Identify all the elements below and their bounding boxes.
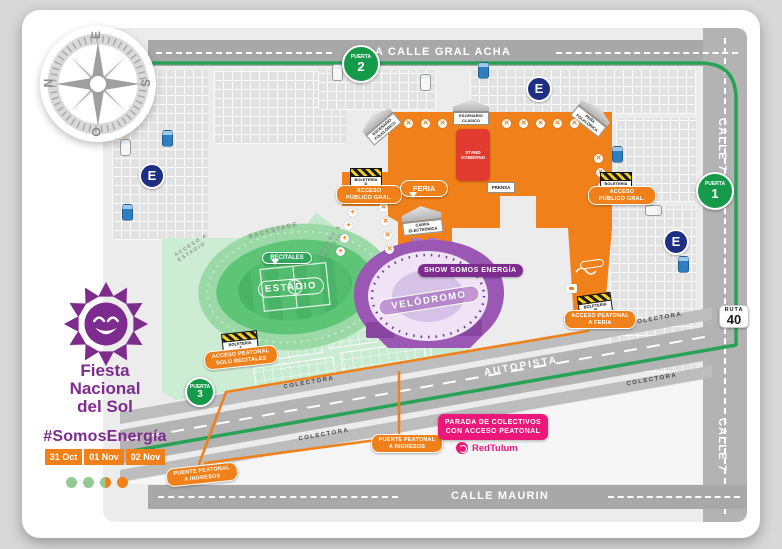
- sun-logo: [62, 280, 150, 368]
- legend-dots: [66, 477, 128, 488]
- turnstile-x-icon: ✕: [536, 119, 545, 128]
- turnstile-x-icon: ✕: [502, 119, 511, 128]
- turnstile-x-icon: ✕: [404, 119, 413, 128]
- turnstile-x-icon: ✕: [379, 203, 388, 212]
- turnstile-x-icon: ✕: [438, 119, 447, 128]
- acceso-publico-gral-left: ACCESOPÚBLICO GRAL.: [336, 185, 402, 204]
- entry-plus-icon: +: [336, 247, 345, 256]
- tent-icon: [453, 100, 489, 112]
- carpa-electronica-tent: CARPA ELECTRÓNICA: [401, 204, 444, 236]
- compass-rose: E N S O: [40, 26, 156, 142]
- gate-puerta-1: PUERTA 1: [696, 172, 734, 210]
- turnstile-x-icon: ✕: [383, 231, 392, 240]
- compass-letter-north: N: [41, 79, 55, 88]
- show-somos-energia-badge: SHOW SOMOS ENERGÍA: [418, 264, 523, 277]
- entry-plus-icon: +: [344, 221, 353, 230]
- puente-peatonal-center: PUENTE PEATONALA INGRESOS: [371, 434, 443, 453]
- car-icon: [162, 130, 173, 147]
- event-title: Fiesta Nacional del Sol: [38, 362, 172, 416]
- compass-letter-east: E: [89, 31, 103, 39]
- turnstile-x-icon: ✕: [519, 119, 528, 128]
- redtulum-logo: RedTulum: [456, 442, 518, 454]
- hazard-stripes-icon: [600, 172, 632, 181]
- parada-colectivos-badge: PARADA DE COLECTIVOS CON ACCESO PEATONAL: [438, 414, 548, 440]
- stand-gobierno: STAND GOBIERNO: [456, 129, 490, 181]
- car-icon: [122, 204, 133, 221]
- turnstile-x-icon: ✕: [553, 119, 562, 128]
- car-icon: [645, 205, 662, 216]
- turnstile-x-icon: ✕: [381, 217, 390, 226]
- turnstile-x-icon: ✕: [421, 119, 430, 128]
- compass-letter-west: O: [90, 127, 104, 136]
- street-label-calle7-bottom: CALLE 7: [716, 418, 728, 472]
- legend-dot-green: [83, 477, 94, 488]
- gate-puerta-3: PUERTA 3: [185, 377, 215, 407]
- gate-puerta-2: PUERTA 2: [342, 45, 380, 83]
- hazard-stripes-icon: [350, 168, 382, 177]
- escenario-clasico-tent: ESCENARIO CLÁSICO: [453, 100, 489, 125]
- kiosk-icon: [566, 284, 577, 293]
- ruta-40-shield: RUTA 40: [719, 305, 749, 328]
- car-icon: [612, 146, 623, 163]
- street-label-bottom: CALLE MAURIN: [400, 490, 600, 502]
- redtulum-icon: [456, 442, 468, 454]
- feria-bubble: FERIA: [400, 180, 448, 197]
- car-icon: [678, 256, 689, 273]
- hashtag-label: #SomosEnergía: [30, 428, 180, 446]
- date-chip-2: 01 Nov: [84, 449, 124, 465]
- date-chip-1: 31 Oct: [45, 449, 83, 465]
- turnstile-x-icon: ✕: [594, 154, 603, 163]
- site-map-screenshot: A CALLE GRAL ACHA CALLE MAURIN CALLE 7 C…: [0, 0, 782, 549]
- car-icon: [420, 74, 431, 91]
- parking-badge: E: [526, 76, 552, 102]
- recitales-bubble: RECITALES: [262, 252, 312, 264]
- acceso-publico-gral-right: ACCESOPÚBLICO GRAL.: [588, 186, 656, 205]
- parking-badge: E: [663, 229, 689, 255]
- turnstile-x-icon: ✕: [385, 245, 394, 254]
- parking-badge: E: [139, 163, 165, 189]
- legend-dot-green: [66, 477, 77, 488]
- acceso-peatonal-feria: ACCESO PEATONALA FERIA: [564, 310, 636, 329]
- car-icon: [478, 62, 489, 79]
- turnstile-x-icon: ✕: [570, 119, 579, 128]
- legend-dot-split: [100, 477, 111, 488]
- legend-dot-orange: [117, 477, 128, 488]
- date-chips: 31 Oct 01 Nov 02 Nov: [38, 449, 172, 465]
- prensa-label: PRENSA: [487, 182, 515, 193]
- date-chip-3: 02 Nov: [126, 449, 166, 465]
- entry-plus-icon: +: [348, 208, 357, 217]
- entry-plus-icon: +: [340, 234, 349, 243]
- street-label-calle7-top: CALLE 7: [716, 118, 728, 172]
- compass-letter-south: S: [139, 79, 153, 87]
